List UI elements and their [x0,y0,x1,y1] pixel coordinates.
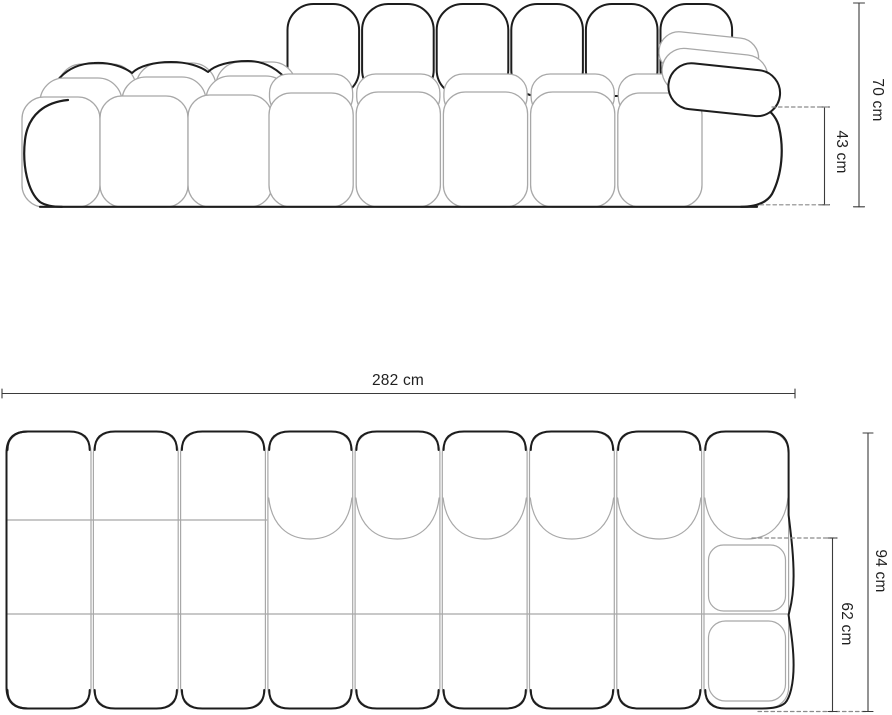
plan-module-columns [6,432,788,709]
elevation-height-total-label: 70 cm [869,78,886,121]
elevation-view: 70 cm 43 cm [22,3,886,207]
elevation-arm-bulge-fill [703,100,782,207]
plan-depth-seat-label: 62 cm [838,602,855,645]
plan-dimension-62 [828,538,837,712]
elevation-dimension-70 [854,3,865,207]
elevation-height-seat-label: 43 cm [833,130,850,173]
plan-view: 282 cm [2,372,889,712]
plan-depth-total-label: 94 cm [872,549,889,592]
elevation-dimension-43 [820,107,830,205]
plan-dimension-94 [863,433,873,712]
elevation-front-cushions [269,92,702,207]
sofa-dimension-drawing: 70 cm 43 cm 282 cm [0,0,892,715]
plan-width-total-label: 282 cm [372,372,424,389]
technical-drawing-canvas: 70 cm 43 cm 282 cm [0,0,892,715]
elevation-chaise-front-cushions [22,95,272,207]
plan-dimension-282 [2,389,795,398]
